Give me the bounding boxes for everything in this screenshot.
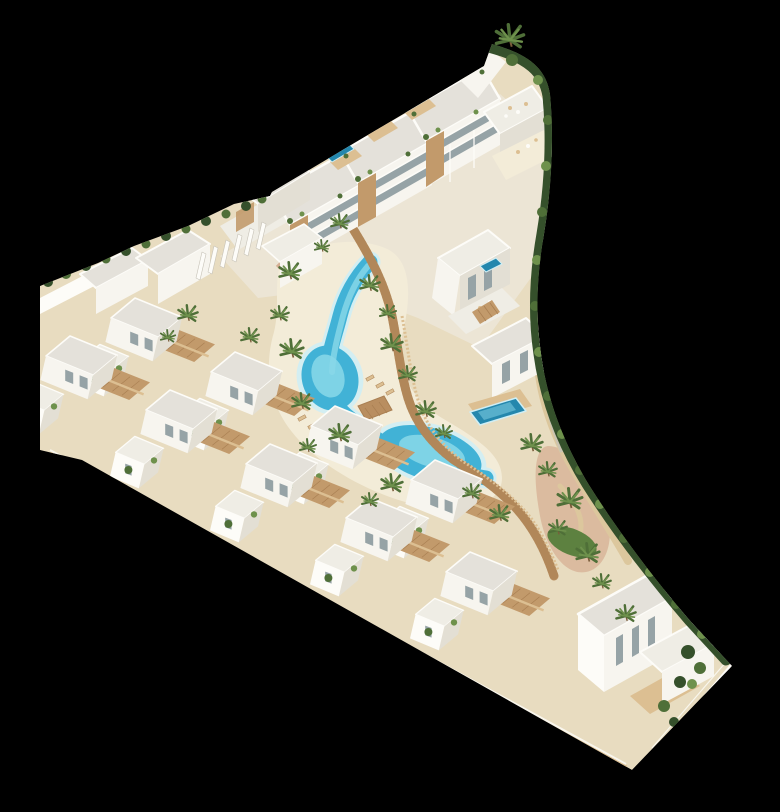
render-image: Aerial 3D architectural rendering of a w…: [40, 16, 780, 796]
scene-canvas: [40, 16, 780, 796]
